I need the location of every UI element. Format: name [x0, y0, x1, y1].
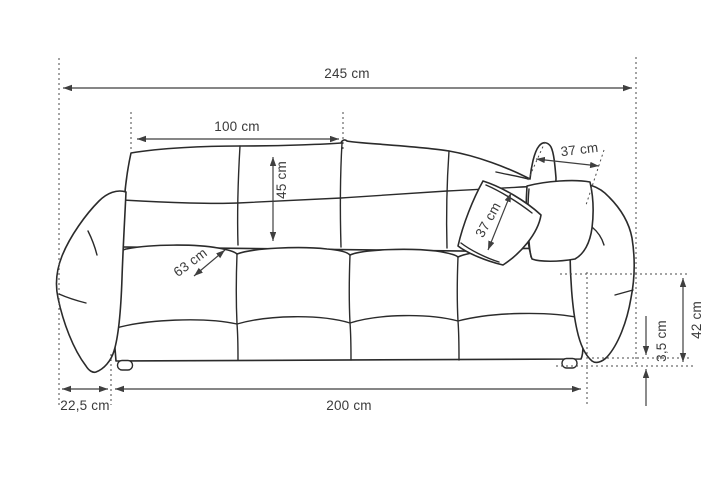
dim-backrest-width-label: 100 cm: [214, 119, 259, 134]
sofa-foot-right: [562, 359, 577, 369]
sofa-drawing: [56, 140, 634, 372]
left-armrest: [56, 191, 126, 372]
dim-total-width-label: 245 cm: [324, 66, 369, 81]
sofa-foot-left: [118, 361, 133, 371]
dim-base-width-label: 200 cm: [326, 398, 371, 413]
dim-backrest-height-label: 45 cm: [274, 161, 289, 199]
dim-armrest-width-label: 22,5 cm: [60, 398, 109, 413]
dim-pillow-width-label: 37 cm: [560, 140, 599, 159]
dim-leg-height-label: 3,5 cm: [654, 320, 669, 362]
sofa-dimension-diagram: 245 cm 100 cm 45 cm 37 cm 37 cm 63 cm 22…: [0, 0, 720, 480]
diagram-svg: 245 cm 100 cm 45 cm 37 cm 37 cm 63 cm 22…: [0, 0, 720, 480]
dim-seat-height-label: 42 cm: [689, 301, 704, 339]
